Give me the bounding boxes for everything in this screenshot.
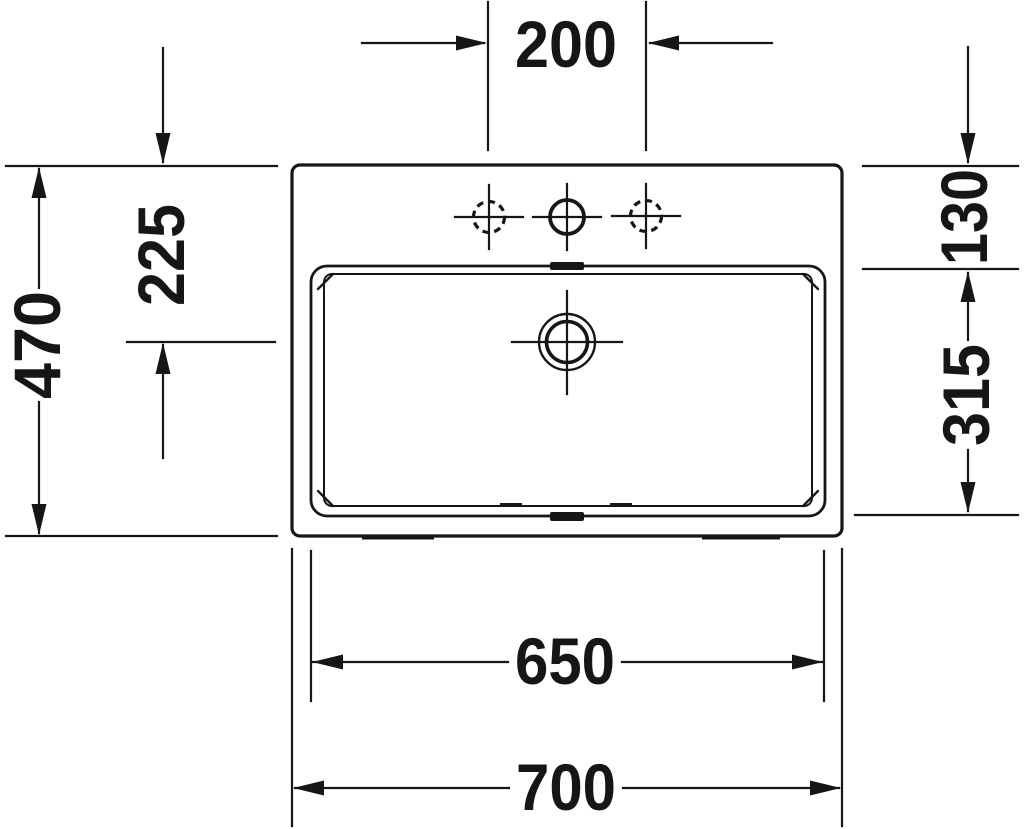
arrowhead-down-pointing bbox=[156, 133, 171, 164]
dimension-label-130: 130 bbox=[927, 169, 1001, 265]
dimension-label-650: 650 bbox=[515, 624, 615, 698]
washbasin-technical-drawing: 200 470 225 130 315 bbox=[0, 0, 1024, 829]
sink-bottom-tab-right bbox=[702, 535, 780, 540]
dimension-label-470: 470 bbox=[0, 291, 74, 399]
dimension-label-315: 315 bbox=[929, 344, 1003, 446]
arrowhead-left-pointing bbox=[293, 781, 324, 796]
arrowhead-right-pointing bbox=[456, 36, 487, 51]
faucet-holes bbox=[455, 184, 680, 250]
dimension-basin-width: 650 bbox=[311, 551, 824, 701]
faucet-hole-right bbox=[612, 184, 680, 248]
basin-bottom-center-tab bbox=[550, 512, 584, 521]
dimension-basin-depth: 315 bbox=[855, 271, 1018, 515]
arrowhead-up-pointing bbox=[32, 167, 47, 198]
faucet-hole-left bbox=[455, 185, 523, 249]
dimension-tap-spacing: 200 bbox=[362, 2, 772, 150]
arrowhead-down-pointing bbox=[961, 133, 976, 164]
arrowhead-left-pointing bbox=[648, 36, 679, 51]
dimension-label-200: 200 bbox=[515, 7, 617, 81]
arrowhead-down-pointing bbox=[32, 504, 47, 535]
basin-top-center-notch bbox=[550, 262, 584, 270]
basin-bottom-dash-right bbox=[610, 503, 632, 507]
basin-bottom-dash-left bbox=[500, 503, 522, 507]
dimension-label-225: 225 bbox=[124, 204, 198, 306]
arrowhead-left-pointing bbox=[312, 655, 343, 670]
dimension-top-to-basin: 130 bbox=[863, 47, 1018, 269]
dimension-top-to-drain: 225 bbox=[124, 48, 275, 458]
drain bbox=[512, 291, 622, 394]
faucet-hole-center bbox=[533, 184, 601, 250]
dimension-label-700: 700 bbox=[516, 750, 616, 824]
arrowhead-right-pointing bbox=[810, 781, 841, 796]
arrowhead-down-pointing bbox=[961, 482, 976, 513]
sink-bottom-tab-left bbox=[362, 535, 434, 540]
drawing-canvas: 200 470 225 130 315 bbox=[0, 0, 1024, 829]
arrowhead-right-pointing bbox=[792, 655, 823, 670]
